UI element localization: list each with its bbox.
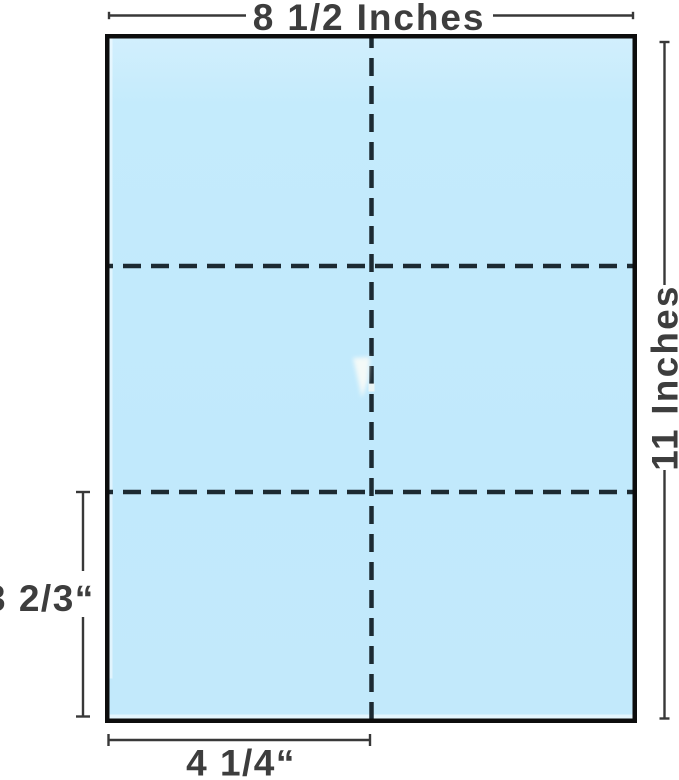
svg-text:4 1/4“: 4 1/4“ xyxy=(186,743,296,780)
svg-text:3 2/3“: 3 2/3“ xyxy=(0,578,95,619)
svg-text:11 Inches: 11 Inches xyxy=(645,284,679,470)
svg-text:8 1/2 Inches: 8 1/2 Inches xyxy=(253,0,486,38)
